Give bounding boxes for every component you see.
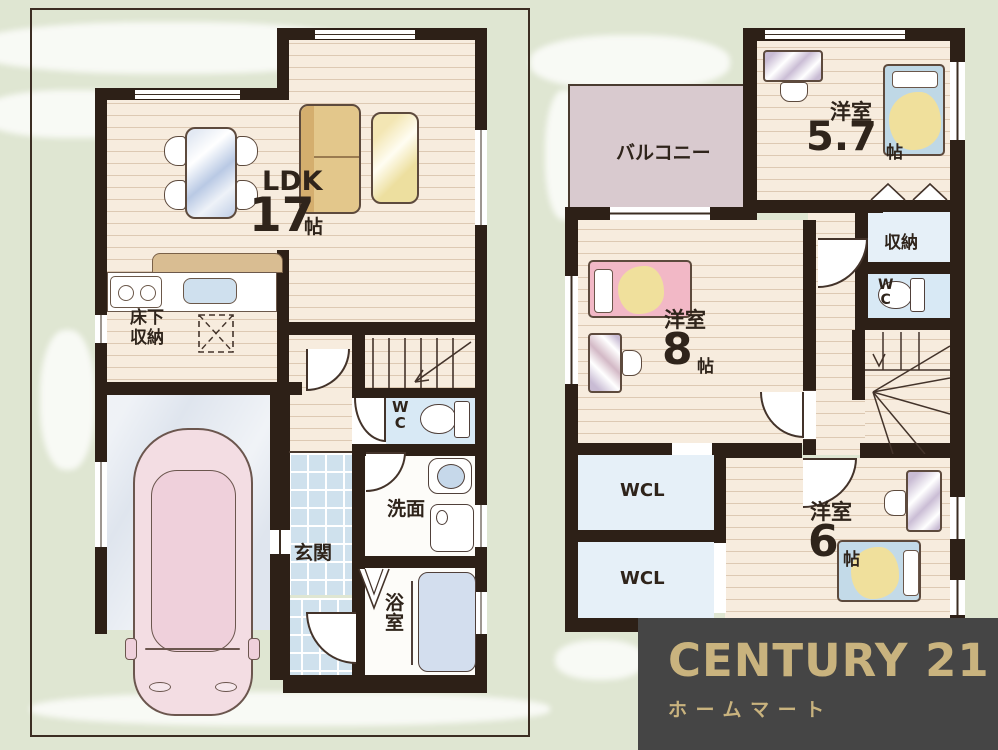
bedroom8-unit: 帖 (697, 352, 714, 377)
folding-door-icon (868, 182, 950, 202)
window (475, 592, 487, 634)
toilet-tank-icon (910, 278, 925, 312)
bedroom6-size: 6 (808, 516, 839, 567)
wall (277, 28, 289, 90)
window (950, 497, 965, 539)
kitchen-counter-bar (152, 253, 283, 273)
chair (884, 490, 906, 516)
bathtub-icon (418, 572, 476, 672)
watercolor-streak (555, 640, 645, 680)
desk (588, 333, 622, 393)
entrance-step-line (289, 451, 352, 453)
car-headlight (215, 682, 237, 692)
underfloor-storage-line1: 床下 (130, 308, 164, 328)
floorplan-canvas: LDK 17 帖 床下 収納 WC 洗面 玄関 浴室 (0, 0, 998, 750)
window (315, 30, 415, 39)
wall (743, 28, 757, 220)
chair (164, 136, 186, 166)
window (95, 315, 107, 343)
wcl1-label: WCL (620, 480, 665, 501)
window (95, 462, 107, 547)
wall (95, 88, 107, 394)
wcl2-label: WCL (620, 568, 665, 589)
wc-label-2f: WC (878, 278, 893, 307)
washroom-label: 洗面 (387, 494, 425, 521)
window (475, 505, 487, 547)
window (610, 207, 710, 220)
car-windshield-line (145, 648, 240, 650)
ldk-unit: 帖 (304, 212, 323, 239)
car-mirror (248, 638, 260, 660)
window (950, 62, 965, 140)
stairs-1f (357, 338, 475, 388)
watercolor-streak (530, 35, 730, 90)
wall (726, 443, 802, 458)
hallway-floor (289, 395, 352, 453)
wc-label-1f: WC (392, 400, 409, 432)
century21-logo: CENTURY 21 ホームマート (638, 618, 998, 750)
entrance-label: 玄関 (294, 538, 332, 565)
balcony-label: バルコニー (616, 138, 711, 165)
underfloor-storage-line2: 収納 (130, 328, 164, 348)
bedroom57-unit: 帖 (886, 138, 903, 163)
burner-icon (118, 285, 134, 301)
washing-machine-icon (430, 504, 474, 552)
window (270, 530, 290, 554)
door-strip (803, 390, 816, 440)
window (950, 580, 965, 615)
kitchen-sink-icon (183, 278, 237, 304)
car-headlight (149, 682, 171, 692)
wall (352, 388, 487, 398)
underfloor-storage-label: 床下 収納 (130, 308, 164, 349)
wall (855, 318, 965, 330)
sofa-seam (314, 156, 359, 158)
chair (780, 82, 808, 102)
ottoman (371, 112, 419, 204)
wall (855, 262, 965, 274)
wall (283, 675, 487, 693)
window (135, 90, 240, 99)
window (765, 30, 905, 39)
wall (289, 322, 487, 335)
stove-icon (110, 276, 162, 308)
chair (622, 350, 642, 376)
burner-icon (140, 285, 156, 301)
entrance-tile (289, 453, 352, 595)
bathtub-edge-line (411, 581, 413, 665)
century21-store-name: ホームマート (668, 695, 998, 722)
bedroom57-size: 5.7 (806, 114, 877, 160)
bedroom8-size: 8 (662, 324, 693, 375)
storage-label: 収納 (884, 228, 918, 253)
sink-bowl (437, 464, 465, 489)
wall (475, 28, 487, 445)
chair (164, 180, 186, 210)
blanket (618, 266, 664, 314)
sink-icon (428, 458, 472, 494)
pillow (594, 269, 613, 313)
pillow (903, 550, 919, 596)
underfloor-storage-icon (197, 313, 235, 354)
pillow (892, 71, 938, 88)
car-cabin (151, 470, 236, 652)
door-strip (672, 443, 712, 455)
wall (565, 530, 715, 542)
car-mirror (125, 638, 137, 660)
dining-table (185, 127, 237, 219)
window (565, 276, 578, 384)
door-strip (714, 543, 726, 613)
bedroom6-unit: 帖 (843, 545, 860, 570)
desk (906, 470, 942, 532)
century21-brand-text: CENTURY 21 (668, 638, 998, 683)
wall (475, 445, 487, 693)
washer-dial (436, 510, 448, 525)
toilet-icon (420, 404, 456, 434)
bathroom-label: 浴室 (384, 594, 405, 634)
wall (714, 443, 726, 543)
wall (852, 330, 865, 400)
car (133, 428, 253, 716)
desk (763, 50, 823, 82)
toilet-tank-icon (454, 401, 470, 438)
window (475, 130, 487, 225)
wall (565, 207, 578, 620)
stairs-2f (865, 332, 950, 454)
